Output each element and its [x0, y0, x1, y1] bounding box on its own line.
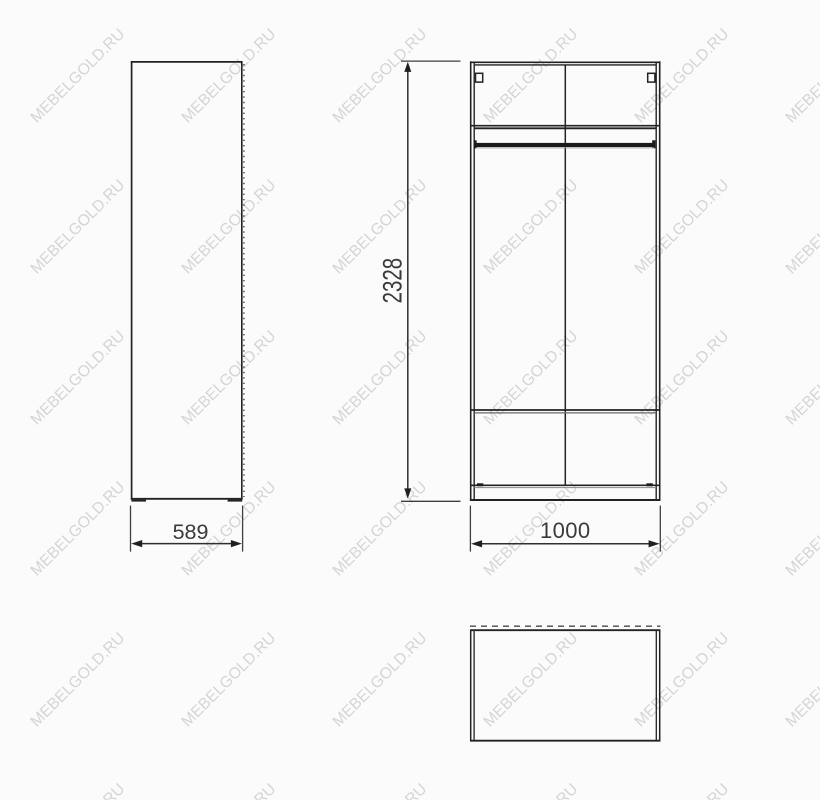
svg-text:2328: 2328: [378, 258, 408, 304]
svg-text:1000: 1000: [540, 518, 591, 543]
svg-text:589: 589: [173, 520, 209, 544]
